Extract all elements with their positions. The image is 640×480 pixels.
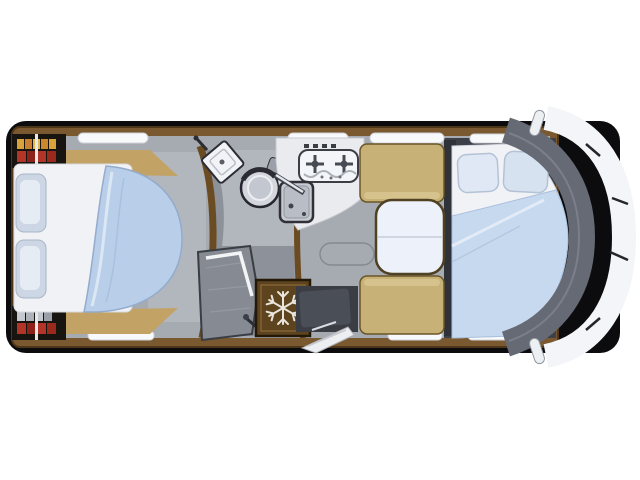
motorhome-floorplan [0, 0, 640, 480]
window-top-3 [370, 133, 444, 143]
shower-tray [198, 246, 258, 340]
rear-pillow-top-highlight [20, 180, 40, 224]
entry-door-panel [299, 288, 351, 327]
window-top-1 [78, 133, 148, 143]
bench-top-cushion-edge [364, 192, 440, 199]
rear-bedroom [12, 134, 182, 340]
floorplan-canvas [0, 0, 640, 480]
front-pillow-left [457, 153, 499, 193]
rear-pillow-bottom-highlight [20, 246, 40, 290]
bench-bottom-cushion-edge [364, 279, 440, 286]
shelf-rail-top [35, 134, 38, 168]
shower-cubicle [198, 246, 260, 340]
